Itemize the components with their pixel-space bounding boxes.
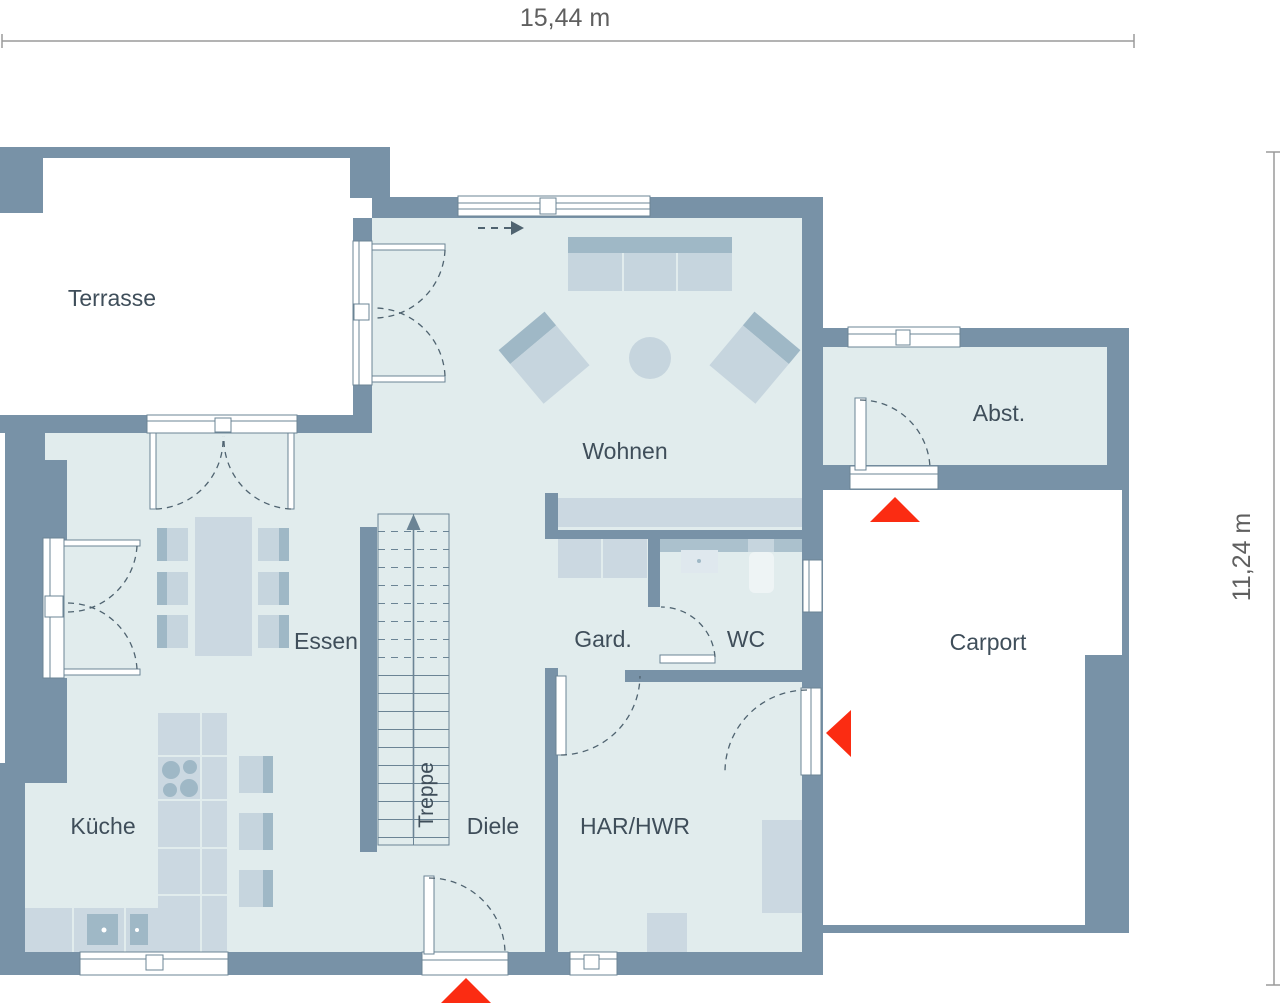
dining-chair xyxy=(258,572,289,605)
wall-wohnen-south-stub xyxy=(545,493,558,532)
dining-chair xyxy=(258,615,289,648)
sofa xyxy=(568,237,732,291)
floor-plan-page: Terrasse Wohnen Essen Küche Diele HAR/HW… xyxy=(0,0,1280,1003)
window-wc-east xyxy=(803,560,822,612)
entrance-marker-front-door xyxy=(441,978,491,1003)
wall-wc-south xyxy=(625,670,807,682)
kitchen-island xyxy=(158,713,227,952)
washing-machine xyxy=(647,913,687,952)
room-label-diele: Diele xyxy=(467,813,519,839)
wc-cistern xyxy=(748,538,774,552)
room-label-garderobe: Gard. xyxy=(574,626,632,652)
sideboard xyxy=(558,498,802,527)
kitchen-cabinet-door xyxy=(130,914,148,945)
wardrobe xyxy=(558,537,647,578)
floor-plan-drawing: Terrasse Wohnen Essen Küche Diele HAR/HW… xyxy=(0,0,1280,1003)
bar-stools xyxy=(239,756,273,907)
window-har-south xyxy=(570,952,617,975)
wall-nw-block xyxy=(0,147,43,213)
dining-chair xyxy=(157,615,188,648)
room-label-wc: WC xyxy=(727,626,765,652)
dining-chair xyxy=(258,528,289,561)
window-kueche-south xyxy=(80,952,228,975)
wall-carport-east-thin xyxy=(1122,490,1129,655)
wall-treppe xyxy=(360,527,377,852)
window-wohnen-north xyxy=(458,196,650,216)
wall-west-step xyxy=(0,763,67,783)
bar-stool xyxy=(239,756,273,793)
room-label-wohnen: Wohnen xyxy=(582,438,667,464)
kitchen-counter xyxy=(25,908,158,952)
dining-table xyxy=(195,517,252,656)
dining-chairs-left xyxy=(157,528,188,648)
dimension-right: 11,24 m xyxy=(1228,152,1280,985)
wall-west-stub-2 xyxy=(45,678,67,763)
storage-cabinet xyxy=(762,820,802,913)
room-label-terrasse: Terrasse xyxy=(68,285,156,311)
wc-vanity xyxy=(660,538,802,552)
dining-chair xyxy=(157,528,188,561)
dining-chairs-right xyxy=(258,528,289,648)
wall-carport-south xyxy=(823,925,1085,933)
wall-wohnen-south xyxy=(545,530,802,539)
window-abst-north xyxy=(848,327,960,347)
wall-west-lower xyxy=(0,783,25,975)
room-label-treppe: Treppe xyxy=(415,762,438,828)
bar-stool xyxy=(239,870,273,907)
room-label-carport: Carport xyxy=(950,629,1027,655)
dimension-width-label: 15,44 m xyxy=(520,4,610,32)
wall-terrasse-north xyxy=(0,147,353,158)
room-label-kueche: Küche xyxy=(70,813,135,839)
coffee-table xyxy=(629,337,671,379)
wc-toilet xyxy=(749,552,774,593)
wall-carport-east xyxy=(1085,655,1129,933)
room-label-essen: Essen xyxy=(294,628,358,654)
dimension-height-label: 11,24 m xyxy=(1228,513,1256,601)
wall-west-stub-1 xyxy=(45,460,67,540)
bar-stool xyxy=(239,813,273,850)
stairs xyxy=(378,514,449,845)
room-label-har-hwr: HAR/HWR xyxy=(580,813,690,839)
wall-house-nw-corner xyxy=(350,147,390,198)
wall-west-upper xyxy=(5,433,45,763)
dining-chair xyxy=(157,572,188,605)
room-label-abst: Abst. xyxy=(973,400,1025,426)
wall-gard-wc xyxy=(648,539,660,607)
carport-floor xyxy=(823,490,1085,925)
wall-terrasse-east-upper xyxy=(353,218,372,241)
dimension-top: 15,44 m xyxy=(2,4,1134,48)
